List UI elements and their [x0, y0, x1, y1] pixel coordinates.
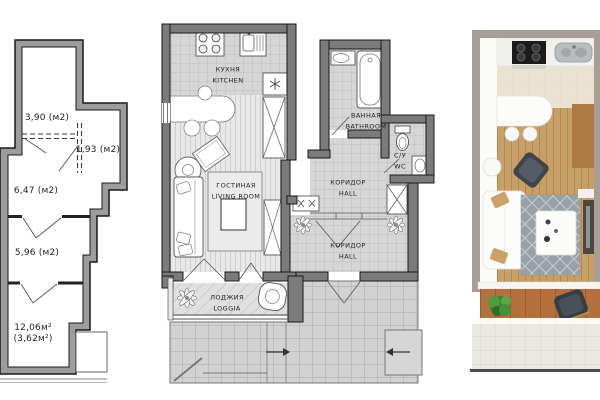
floorplan-screenshot: 3,90 (м2) 1,93 (м2) 6,47 (м2) 5,96 (м2) …	[0, 0, 600, 400]
room-label-loggia-ru: ЛОДЖИЯ	[210, 293, 244, 304]
render-tall-cabinet	[572, 104, 594, 168]
room-label-hall-upper-ru: КОРИДОР	[330, 178, 365, 189]
room-label-wc-ru: С/У	[394, 151, 406, 162]
room-label-kitchen-ru: КУХНЯ	[213, 65, 244, 76]
render-3d-plan	[470, 30, 600, 372]
coffee-table-icon	[221, 199, 246, 230]
render-rug-icon	[521, 195, 580, 275]
room-label-hall-lower-en: HALL	[330, 251, 365, 262]
floorplans-graphic	[0, 0, 600, 400]
area-label-362: (3,62м²)	[13, 334, 52, 344]
stove-icon	[196, 31, 224, 56]
room-label-loggia: ЛОДЖИЯ LOGGIA	[210, 293, 244, 314]
closet-x-icon	[263, 97, 285, 158]
room-label-hall-upper-en: HALL	[330, 188, 365, 199]
room-label-living: ГОСТИНАЯ LIVING ROOM	[212, 181, 261, 202]
kitchen-sink-icon	[240, 31, 266, 56]
window-icon	[162, 103, 170, 123]
render-common-tiles	[472, 324, 600, 369]
room-label-bathroom-en: BATHROOM	[346, 121, 387, 132]
render-sink-icon	[555, 43, 592, 62]
render-window-band	[472, 318, 600, 324]
wardrobe-icon	[264, 200, 281, 255]
room-label-bathroom: ВАННАЯ BATHROOM	[346, 111, 387, 132]
room-label-loggia-en: LOGGIA	[210, 303, 244, 314]
room-label-living-ru: ГОСТИНАЯ	[212, 181, 261, 192]
room-label-kitchen: КУХНЯ KITCHEN	[213, 65, 244, 86]
fridge-snowflake-icon	[263, 73, 287, 95]
sofa-icon	[174, 177, 203, 257]
bathroom-sink-icon	[331, 51, 355, 65]
hall-closet-x-icon	[387, 185, 407, 214]
detailed-floor-plan	[162, 24, 434, 383]
area-label-596: 5,96 (м2)	[15, 248, 59, 258]
room-label-bathroom-ru: ВАННАЯ	[346, 111, 387, 122]
room-label-kitchen-en: KITCHEN	[213, 75, 244, 86]
room-label-living-en: LIVING ROOM	[212, 191, 261, 202]
bathtub-icon	[357, 51, 383, 108]
room-label-wc: С/У WC	[394, 151, 406, 172]
room-label-hall-lower: КОРИДОР HALL	[330, 241, 365, 262]
area-label-390: 3,90 (м2)	[25, 113, 69, 123]
render-loggia-sill	[478, 282, 600, 289]
plant-icon	[294, 216, 312, 234]
render-sofa-icon	[483, 191, 526, 269]
loggia-outline	[76, 332, 107, 372]
area-label-1206: 12,06м²	[14, 323, 52, 333]
render-bottom-line	[470, 369, 600, 372]
plant-icon	[387, 216, 405, 234]
render-side-table-icon	[483, 158, 501, 176]
room-label-hall-lower-ru: КОРИДОР	[330, 241, 365, 252]
area-label-647: 6,47 (м2)	[14, 186, 58, 196]
room-label-hall-upper: КОРИДОР HALL	[330, 178, 365, 199]
area-label-193: 1,93 (м2)	[76, 145, 120, 155]
plant-icon	[177, 288, 197, 308]
toilet-icon	[395, 126, 410, 151]
room-label-wc-en: WC	[394, 161, 406, 172]
